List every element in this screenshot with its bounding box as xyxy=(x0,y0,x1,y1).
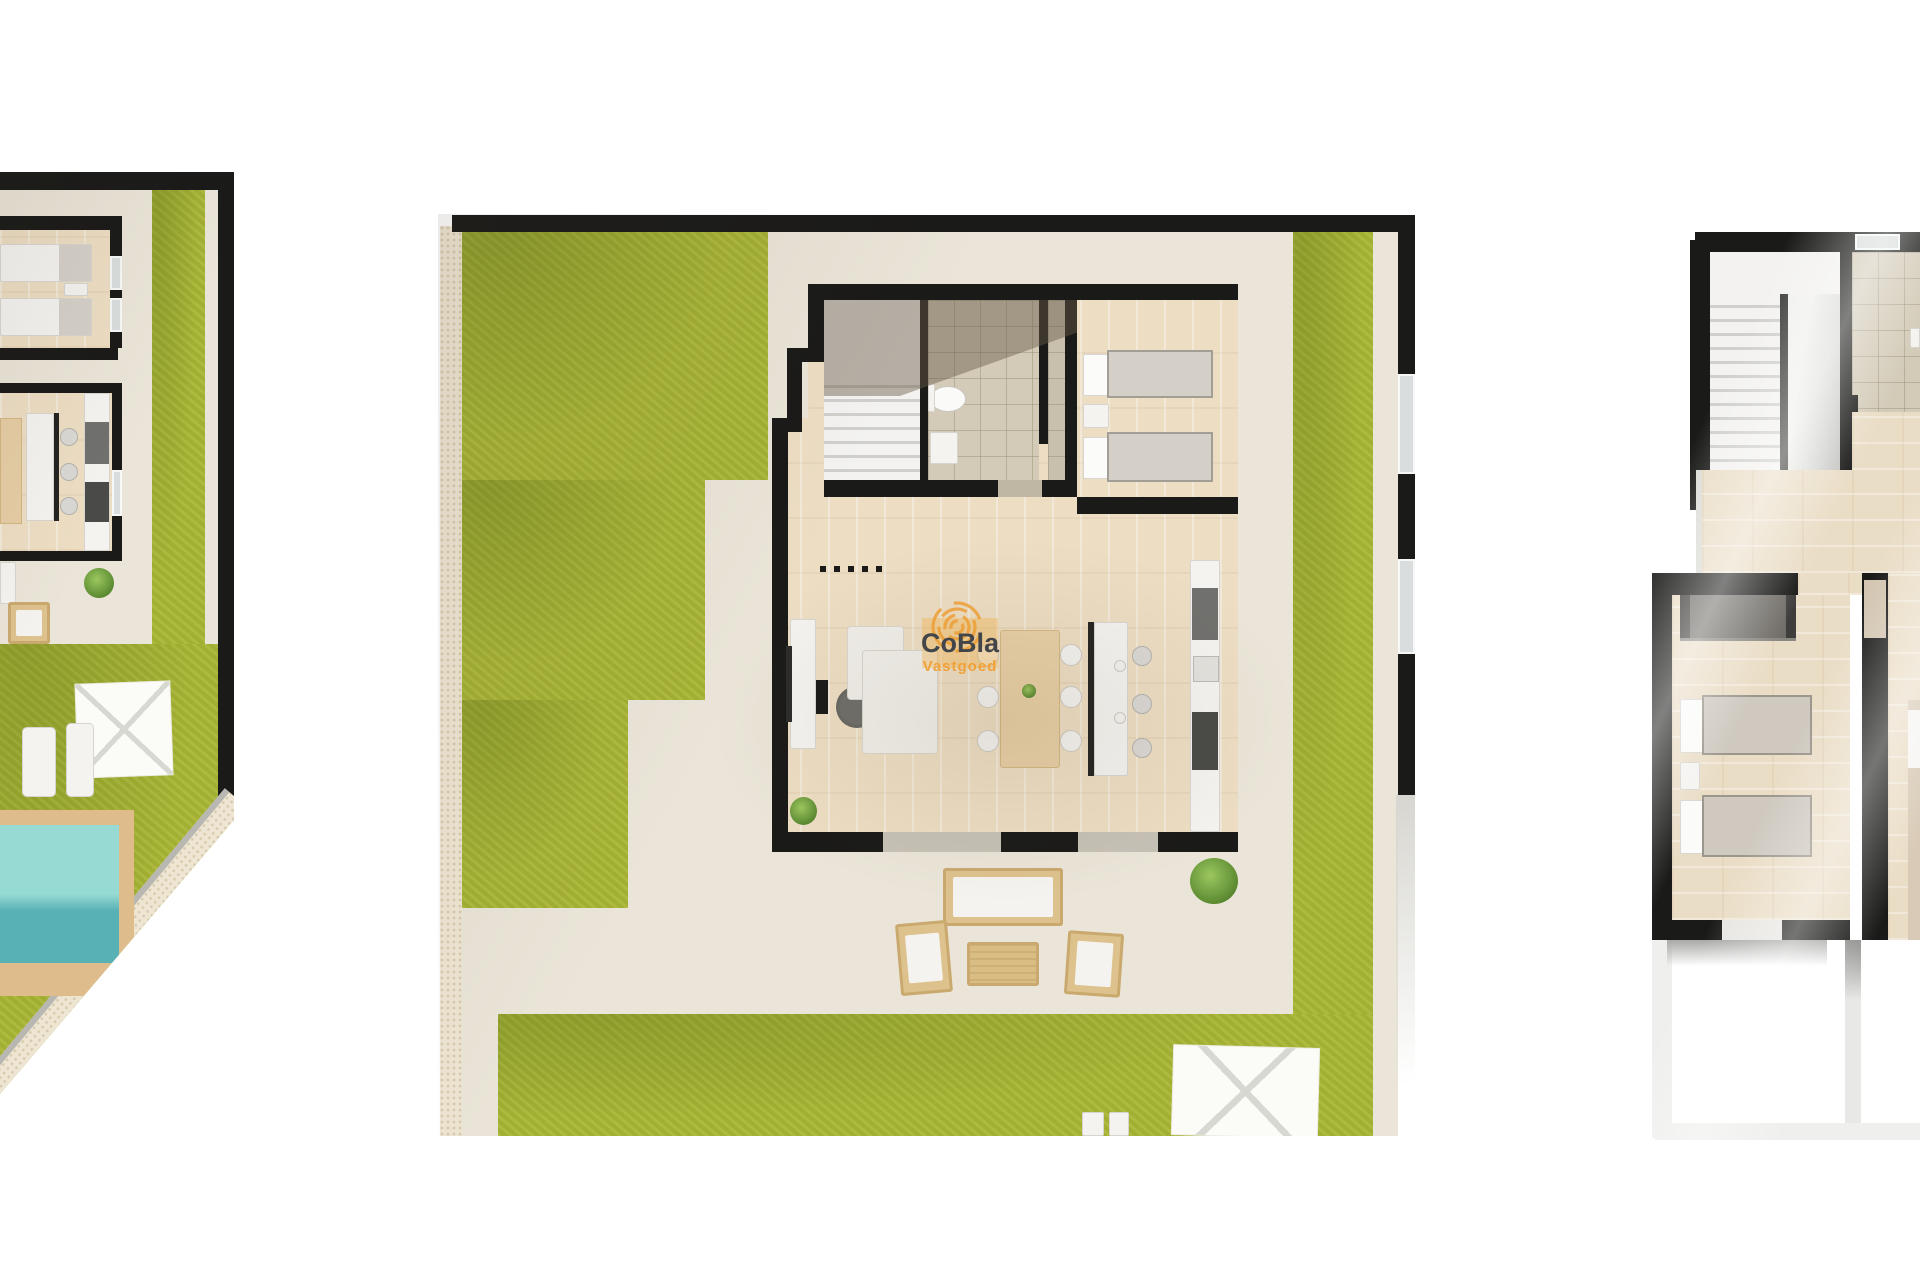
bed-blanket xyxy=(59,245,91,281)
window-east xyxy=(1398,374,1415,474)
sun-lounger xyxy=(66,723,94,797)
ghost-wall xyxy=(1655,1123,1920,1140)
kitchen-counter xyxy=(84,393,110,551)
bedroom-wall-left xyxy=(1065,300,1077,497)
bar-stool xyxy=(60,497,78,515)
window-east xyxy=(1398,559,1415,654)
kitchen-window xyxy=(112,470,122,516)
bed-blanket xyxy=(1107,350,1213,398)
potted-plant xyxy=(84,568,114,598)
plot-wall-top xyxy=(452,215,1415,232)
bed-blanket xyxy=(1702,795,1812,857)
bed xyxy=(1083,350,1213,398)
stair-flight-left xyxy=(1710,294,1780,470)
bed xyxy=(0,244,92,282)
bed xyxy=(1083,432,1213,482)
outdoor-armchair xyxy=(1064,930,1124,998)
bed-blanket xyxy=(1107,432,1213,482)
window-top xyxy=(1855,234,1900,250)
appliance xyxy=(85,482,109,522)
kitchen-wall-top xyxy=(0,383,122,393)
watermark: CoBla Vastgoed xyxy=(918,592,1002,678)
bedroom-floor xyxy=(1672,595,1850,920)
table-centerpiece xyxy=(1022,684,1036,698)
step-mark xyxy=(876,566,882,572)
kitchen-island xyxy=(1094,622,1128,776)
wardrobe-end xyxy=(1680,595,1690,638)
floor-plan-right xyxy=(1652,232,1920,1140)
bar-stool xyxy=(1132,738,1152,758)
bed-blanket xyxy=(59,299,91,335)
wardrobe-end xyxy=(1786,595,1796,638)
stair-stringer xyxy=(1780,294,1788,470)
cropped-bed-pillow xyxy=(1908,710,1920,768)
stair-flight-right xyxy=(1788,294,1840,470)
bedroom-wall-bottom xyxy=(1077,497,1238,514)
stairwell-wall xyxy=(920,300,928,480)
lawn-strip-right xyxy=(1293,232,1373,1014)
floorplan-sheet: CoBla Vastgoed xyxy=(0,0,1920,1280)
parasol xyxy=(1172,1045,1319,1136)
sliding-door xyxy=(883,832,1001,852)
watermark-subtitle: Vastgoed xyxy=(918,658,1002,675)
bar-stool xyxy=(1132,694,1152,714)
rattan-chair xyxy=(8,602,50,644)
plot-wall-top xyxy=(0,172,234,190)
dining-chair xyxy=(1060,730,1082,752)
swimming-pool xyxy=(0,825,119,963)
bar-stool xyxy=(60,463,78,481)
bed xyxy=(1680,695,1812,755)
step-mark xyxy=(862,566,868,572)
bed-pillow xyxy=(1680,800,1704,854)
bedroom-wall-left xyxy=(1652,573,1672,940)
bar-stool xyxy=(1132,646,1152,666)
plot-wall-right-faded xyxy=(1396,795,1415,1136)
step-mark xyxy=(820,566,826,572)
dining-chair xyxy=(1060,644,1082,666)
bed-pillow xyxy=(1083,354,1109,396)
outdoor-cabinet xyxy=(0,562,16,604)
outdoor-sofa xyxy=(943,868,1063,926)
coffee-table xyxy=(967,942,1039,986)
stone-boundary-left xyxy=(440,226,462,1136)
ghost-wall xyxy=(1652,940,1672,1138)
landing-floor xyxy=(1702,470,1920,573)
wardrobe xyxy=(1680,595,1796,641)
shower-floor xyxy=(1048,300,1065,480)
wall-shadow-fade xyxy=(1667,940,1827,966)
sliding-door xyxy=(1078,832,1158,852)
cooktop xyxy=(1192,588,1218,640)
wall-shadow-fade xyxy=(1845,940,1861,1000)
door-opening xyxy=(1798,573,1862,595)
tv-cabinet xyxy=(790,619,816,749)
outdoor-armchair xyxy=(895,920,953,996)
sun-lounger xyxy=(1109,1112,1129,1136)
indoor-plant xyxy=(790,797,817,825)
bed-blanket xyxy=(1702,695,1812,755)
bed-pillow xyxy=(1083,437,1109,479)
garden-bush xyxy=(1190,858,1238,904)
plate xyxy=(1114,660,1126,672)
nightstand xyxy=(64,283,88,296)
house-wall-top xyxy=(808,284,1238,300)
sofa-cushion xyxy=(953,877,1053,917)
lawn-main xyxy=(462,700,628,908)
bedroom-wall-top xyxy=(0,216,118,230)
bathroom-door xyxy=(998,480,1042,497)
bedroom-wall-bottom xyxy=(1652,920,1850,940)
floor-plan-left xyxy=(0,172,234,1096)
bed-pillow xyxy=(1680,699,1704,753)
step-mark xyxy=(848,566,854,572)
nightstand xyxy=(1083,404,1109,428)
bathroom-sink xyxy=(930,432,958,464)
dining-chair xyxy=(977,686,999,708)
lawn-main xyxy=(462,232,768,480)
tv-screen xyxy=(786,646,792,722)
lawn-strip xyxy=(152,190,205,662)
kitchen-wall-bottom xyxy=(0,551,122,561)
step-mark xyxy=(834,566,840,572)
toilet xyxy=(930,386,966,412)
sun-lounger xyxy=(1082,1112,1104,1136)
bed xyxy=(1680,795,1812,857)
watermark-title: CoBla xyxy=(918,628,1002,659)
plot-wall-right xyxy=(218,172,234,822)
bedroom-window xyxy=(110,298,122,332)
chair-cushion xyxy=(1075,941,1114,987)
appliance xyxy=(1192,712,1218,770)
door-leaf xyxy=(1864,580,1886,638)
plate xyxy=(1114,712,1126,724)
dining-chair xyxy=(977,730,999,752)
dining-chair xyxy=(1060,686,1082,708)
bathroom-fixture xyxy=(1910,328,1920,348)
kitchen-island xyxy=(26,413,54,521)
landing-floor xyxy=(1852,412,1920,470)
bar-stool xyxy=(60,428,78,446)
cooktop xyxy=(85,422,109,464)
kitchen-sink xyxy=(1193,656,1219,682)
edge-shadow xyxy=(1696,470,1702,573)
stairwell xyxy=(824,300,920,480)
bedroom-wall-top xyxy=(1652,573,1798,595)
bathroom-partition xyxy=(1039,300,1048,444)
sun-lounger xyxy=(22,727,56,797)
dining-table xyxy=(0,418,22,524)
door-opening xyxy=(1722,920,1782,940)
toilet-tank xyxy=(928,384,935,412)
nightstand xyxy=(1680,762,1700,790)
house-wall-left xyxy=(772,418,788,849)
dining-table xyxy=(1000,630,1060,768)
bedroom-window xyxy=(110,256,122,290)
island-edge xyxy=(54,413,59,521)
chair-cushion xyxy=(905,933,943,984)
stair-treads xyxy=(824,374,920,480)
bed xyxy=(0,298,92,336)
lawn-main xyxy=(462,480,705,700)
bedroom-wall-bottom xyxy=(0,348,118,360)
bathroom-wall-bottom xyxy=(824,480,1077,497)
house-wall-bottom xyxy=(772,832,1238,852)
plot-wall-right xyxy=(1398,215,1415,795)
chair-cushion xyxy=(16,610,42,636)
